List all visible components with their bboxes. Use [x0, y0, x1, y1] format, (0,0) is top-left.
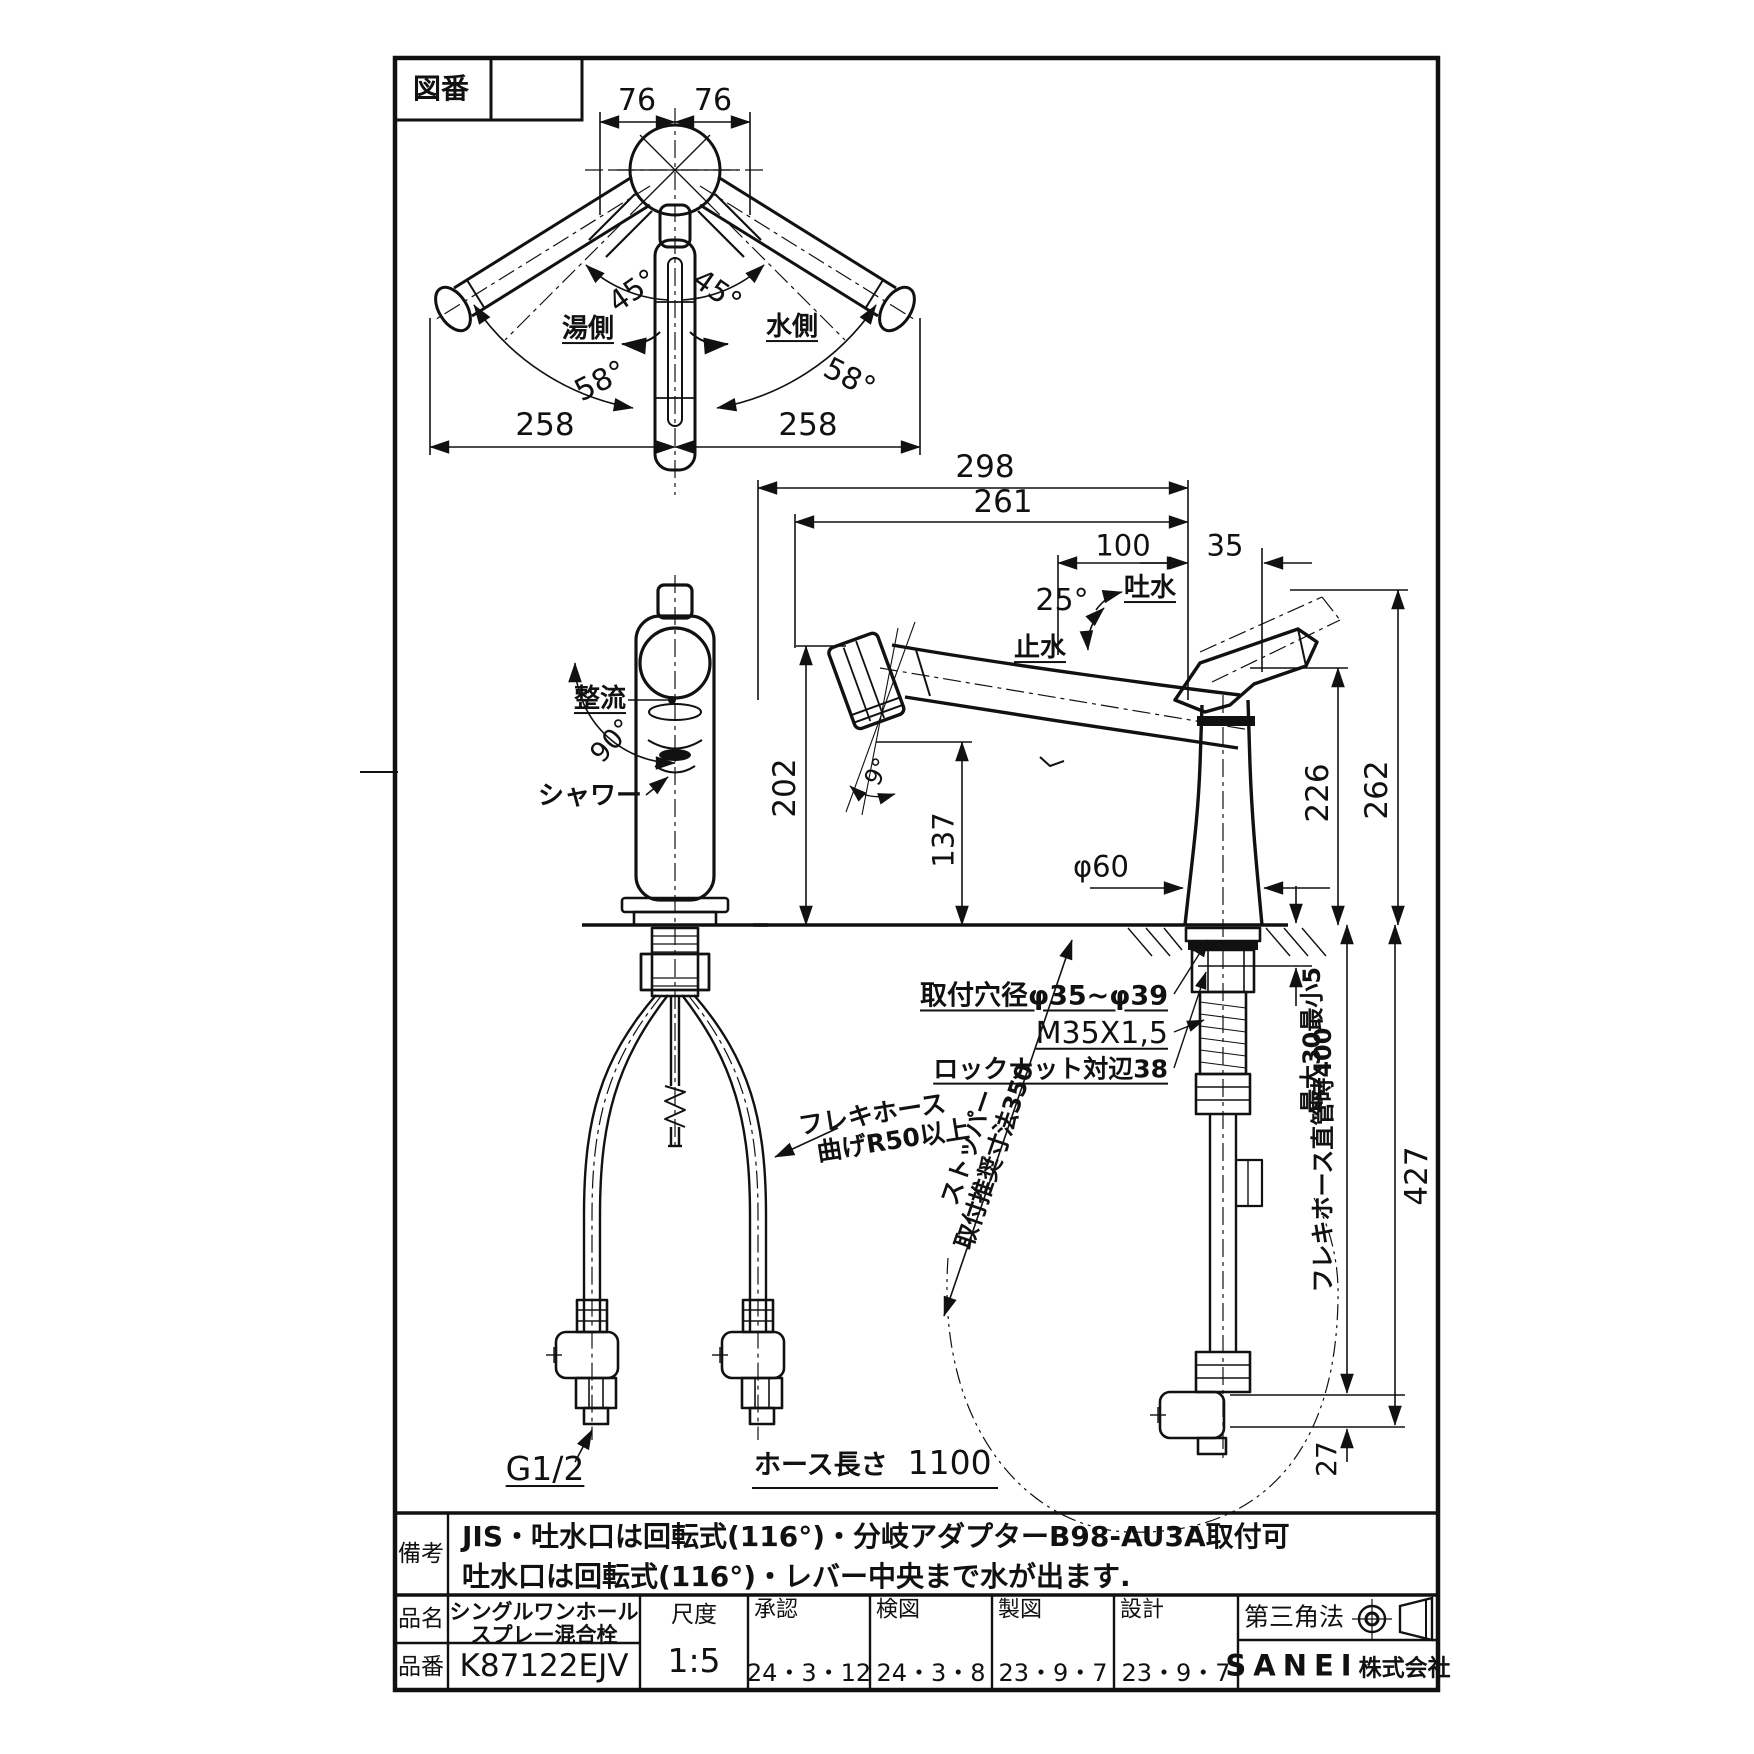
- hose-length-value: 1100: [908, 1443, 992, 1482]
- company-logo: SANEI株式会社: [1225, 1649, 1450, 1682]
- remarks-label: 備考: [398, 1541, 444, 1567]
- product-name-line2: スプレー混合栓: [471, 1623, 618, 1647]
- mount-hole-note: 取付穴径φ35~φ39: [920, 980, 1168, 1011]
- dim-100: 100: [1095, 529, 1150, 562]
- dim-261: 261: [973, 485, 1032, 521]
- dim-258-right: 258: [778, 408, 837, 444]
- thread-size-label: G1/2: [506, 1450, 585, 1488]
- product-code-label: 品番: [398, 1654, 444, 1680]
- scale-label: 尺度: [671, 1602, 717, 1628]
- shower-label: シャワー: [538, 782, 642, 812]
- product-name-line1: シングルワンホール: [450, 1600, 639, 1624]
- rectifier-label: 整流: [574, 685, 626, 715]
- approval-label: 承認: [754, 1597, 798, 1622]
- drawing-linework: [0, 0, 1754, 1754]
- thread-note: M35X1,5: [1036, 1017, 1168, 1052]
- company-suffix: 株式会社: [1359, 1655, 1451, 1681]
- drafting-label: 製図: [998, 1597, 1042, 1622]
- design-label: 設計: [1120, 1597, 1164, 1622]
- dim-76-left: 76: [618, 84, 656, 119]
- remarks-line2: 吐水口は回転式(116°)・レバー中央まで水が出ます.: [462, 1561, 1131, 1593]
- dim-258-left: 258: [515, 408, 574, 444]
- dim-262: 262: [1360, 760, 1396, 819]
- flex-straight-note: フレキホース直管時400: [1310, 1028, 1338, 1293]
- cold-side-label: 水側: [766, 313, 818, 343]
- spout-close-label: 止水: [1014, 634, 1066, 664]
- base-diameter-label: φ60: [1073, 850, 1129, 883]
- company-name: SANEI: [1225, 1648, 1358, 1682]
- inspection-date: 24・3・8: [876, 1660, 985, 1688]
- dim-226: 226: [1301, 763, 1337, 822]
- top-view-centerlines: [433, 108, 917, 495]
- locknut-note: ロックナット対辺38: [933, 1056, 1168, 1085]
- hose-length: ホース長さ 1100: [752, 1443, 998, 1489]
- angle-25: 25°: [1035, 584, 1088, 619]
- spout-open-label: 吐水: [1124, 574, 1176, 604]
- hose-length-label: ホース長さ: [754, 1443, 888, 1482]
- remarks-line1: JIS・吐水口は回転式(116°)・分岐アダプターB98-AU3A取付可: [462, 1521, 1290, 1553]
- drafting-date: 23・9・7: [998, 1660, 1107, 1688]
- scale-value: 1:5: [667, 1642, 720, 1680]
- dim-35: 35: [1207, 529, 1244, 562]
- dim-202: 202: [768, 758, 804, 817]
- dim-27: 27: [1311, 1441, 1343, 1477]
- dim-137: 137: [927, 812, 960, 867]
- projection-label: 第三角法: [1244, 1604, 1344, 1633]
- approval-date: 24・3・12: [747, 1660, 871, 1688]
- dim-298: 298: [955, 450, 1014, 486]
- dim-76-right: 76: [694, 84, 732, 119]
- zuban-label: 図番: [413, 73, 469, 105]
- design-date: 23・9・7: [1121, 1660, 1230, 1688]
- front-hose-fittings: [546, 1300, 784, 1424]
- product-code: K87122EJV: [460, 1649, 629, 1685]
- product-name-label: 品名: [398, 1606, 444, 1632]
- technical-drawing-page: 図番 76 76 45° 45° 湯側 水側 58° 58° 258 258 整…: [0, 0, 1754, 1754]
- third-angle-projection-icon: [1352, 1598, 1432, 1640]
- dim-427: 427: [1400, 1146, 1436, 1205]
- hot-side-label: 湯側: [562, 315, 614, 345]
- inspection-label: 検図: [876, 1597, 920, 1622]
